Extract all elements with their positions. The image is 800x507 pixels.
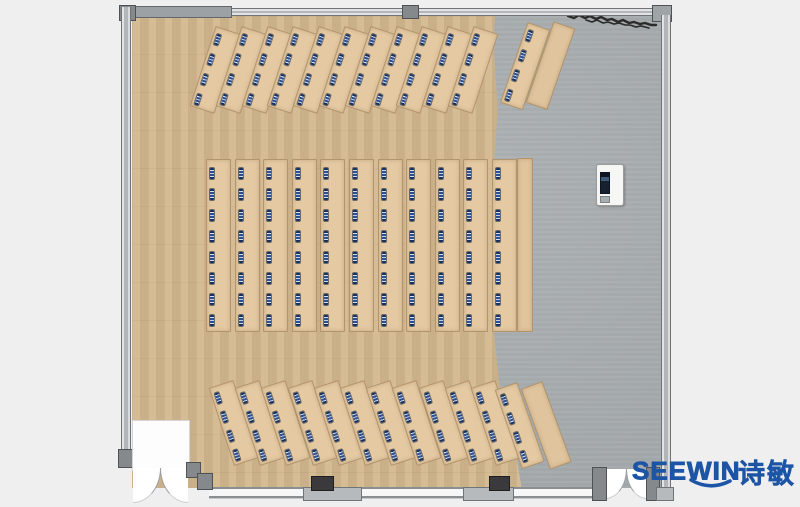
window-band [360,487,463,499]
seat-marker [233,54,240,66]
seat-marker [210,168,214,179]
seat-marker [291,34,298,46]
seat-marker [439,252,443,263]
seat-marker [410,273,414,284]
seat-marker [332,430,339,442]
desk-strip [435,159,460,332]
seat-marker [246,94,253,106]
seat-marker [394,34,401,46]
seat-marker [239,189,243,200]
seat-marker [267,189,271,200]
seat-marker [296,252,300,263]
seat-marker [437,430,444,442]
seat-marker [299,411,306,423]
door-post [592,467,607,501]
logo-swoosh-icon [688,478,734,492]
seat-marker [407,74,414,86]
seat-marker [267,210,271,221]
seat-marker [483,411,490,423]
seat-marker [239,315,243,326]
seat-marker [338,449,345,461]
seat-marker [410,231,414,242]
seat-marker [505,90,512,102]
seat-marker [267,168,271,179]
seat-marker [227,74,234,86]
seat-marker [336,54,343,66]
seat-marker [298,94,305,106]
seat-marker [364,449,371,461]
seat-marker [252,74,259,86]
seat-marker [410,168,414,179]
seat-marker [512,70,519,82]
column-block [489,476,510,491]
seat-marker [501,394,508,406]
seat-marker [439,273,443,284]
seat-marker [467,315,471,326]
seat-marker [210,210,214,221]
seat-marker [210,273,214,284]
seat-marker [304,74,311,86]
desk-strip [235,159,260,332]
seat-marker [496,189,500,200]
seat-marker [369,34,376,46]
seat-marker [439,231,443,242]
window-band [209,487,303,499]
seat-marker [496,168,500,179]
seat-marker [240,34,247,46]
seat-marker [296,231,300,242]
seat-marker [273,411,280,423]
seat-marker [267,315,271,326]
seat-marker [349,94,356,106]
seat-marker [324,252,328,263]
seat-marker [362,54,369,66]
seat-marker [296,294,300,305]
seat-marker [382,189,386,200]
seat-marker [330,74,337,86]
seat-marker [267,273,271,284]
seat-marker [278,74,285,86]
seat-marker [296,168,300,179]
seat-marker [378,411,385,423]
seat-marker [467,294,471,305]
side-counter [517,158,533,332]
seat-marker [279,430,286,442]
podium-screen-icon [600,172,610,194]
seat-marker [324,210,328,221]
seat-marker [343,34,350,46]
seat-marker [317,34,324,46]
seat-marker [210,231,214,242]
seat-marker [439,315,443,326]
seat-marker [495,449,502,461]
seat-marker [324,189,328,200]
seat-marker [439,189,443,200]
seat-marker [233,449,240,461]
floor-plan-canvas: SEEWIN 诗敏 [0,0,800,507]
seat-marker [201,74,208,86]
seat-marker [221,411,228,423]
seat-marker [382,231,386,242]
seat-marker [375,94,382,106]
seat-marker [520,451,527,463]
seat-marker [239,210,243,221]
seat-marker [194,94,201,106]
seat-marker [296,273,300,284]
seat-marker [443,449,450,461]
seat-marker [239,294,243,305]
seat-marker [267,252,271,263]
podium [596,164,624,206]
seat-marker [496,210,500,221]
seat-marker [410,315,414,326]
seat-marker [324,168,328,179]
column-block [311,476,334,491]
seat-marker [465,54,472,66]
seat-marker [424,392,431,404]
seat-marker [463,430,470,442]
seat-marker [526,30,533,42]
seat-marker [457,411,464,423]
door-swing-arc [605,469,627,499]
wall-top-solid-segment [133,6,232,18]
seat-marker [214,34,221,46]
desk-strip [463,159,488,332]
seat-marker [267,294,271,305]
brand-logo-text-cn: 诗敏 [738,452,796,491]
seat-marker [401,94,408,106]
seat-marker [353,294,357,305]
seat-marker [346,392,353,404]
seat-marker [489,430,496,442]
seat-marker [439,294,443,305]
seat-marker [384,430,391,442]
seat-marker [353,315,357,326]
desk-strip [206,159,231,332]
seat-marker [207,54,214,66]
seat-marker [324,273,328,284]
wall-post [402,5,419,19]
seat-marker [285,54,292,66]
door-swing-arc [133,468,161,503]
seat-marker [324,315,328,326]
seat-marker [220,94,227,106]
seat-marker [210,252,214,263]
seat-marker [398,392,405,404]
seat-marker [247,411,254,423]
seat-marker [259,449,266,461]
seat-marker [239,231,243,242]
seat-marker [324,294,328,305]
seat-marker [326,411,333,423]
seat-marker [382,294,386,305]
brand-logo: SEEWIN 诗敏 [626,449,800,505]
seat-marker [467,168,471,179]
seat-marker [467,210,471,221]
seat-marker [227,430,234,442]
seat-marker [323,94,330,106]
seat-marker [390,449,397,461]
seat-marker [433,74,440,86]
seat-marker [239,252,243,263]
seat-marker [404,411,411,423]
seat-marker [410,430,417,442]
seat-marker [267,231,271,242]
seat-marker [439,210,443,221]
seat-marker [215,392,222,404]
door-swing-arc [160,468,188,503]
seat-marker [259,54,266,66]
seat-marker [496,315,500,326]
podium-foot [600,196,610,203]
seat-marker [353,231,357,242]
seat-marker [507,413,514,425]
seat-marker [296,315,300,326]
wall-right [661,15,671,498]
seat-marker [467,231,471,242]
seat-marker [311,54,318,66]
desk-strip [406,159,431,332]
seat-marker [382,252,386,263]
desk-strip [492,159,517,332]
seat-marker [467,189,471,200]
seat-marker [459,74,466,86]
seat-marker [353,210,357,221]
desk-strip [263,159,288,332]
wall-left [121,7,131,459]
seat-marker [241,392,248,404]
seat-marker [265,34,272,46]
seat-marker [319,392,326,404]
seat-marker [496,294,500,305]
seat-marker [410,210,414,221]
seat-marker [382,168,386,179]
seat-marker [430,411,437,423]
seat-marker [382,210,386,221]
seat-marker [414,54,421,66]
seat-marker [496,252,500,263]
seat-marker [210,315,214,326]
seat-marker [352,411,359,423]
desk-strip [378,159,403,332]
seat-marker [427,94,434,106]
seat-marker [472,34,479,46]
seat-marker [296,210,300,221]
desk-strip [292,159,317,332]
seat-marker [210,294,214,305]
entrance-alcove [132,420,190,471]
seat-marker [353,273,357,284]
seat-marker [267,392,274,404]
seat-marker [446,34,453,46]
seat-marker [239,168,243,179]
seat-marker [496,273,500,284]
desk-strip [349,159,374,332]
seat-marker [452,94,459,106]
seat-marker [358,430,365,442]
seat-marker [272,94,279,106]
seat-marker [410,252,414,263]
seat-marker [382,315,386,326]
seat-marker [469,449,476,461]
seat-marker [440,54,447,66]
seat-marker [417,449,424,461]
seat-marker [410,189,414,200]
desk-strip [320,159,345,332]
seat-marker [477,392,484,404]
seat-marker [324,231,328,242]
seat-marker [293,392,300,404]
seat-marker [420,34,427,46]
seat-marker [353,252,357,263]
seat-marker [353,189,357,200]
seat-marker [306,430,313,442]
seat-marker [381,74,388,86]
seat-marker [450,392,457,404]
seat-marker [519,50,526,62]
seat-marker [467,273,471,284]
seat-marker [410,294,414,305]
seat-marker [439,168,443,179]
seat-marker [296,189,300,200]
seat-marker [210,189,214,200]
seat-marker [356,74,363,86]
seat-marker [353,168,357,179]
seat-marker [239,273,243,284]
seat-marker [312,449,319,461]
seat-marker [382,273,386,284]
seat-marker [496,231,500,242]
window-band [512,487,592,499]
seat-marker [286,449,293,461]
door-post [197,473,213,490]
seat-marker [388,54,395,66]
seat-marker [372,392,379,404]
seat-marker [467,252,471,263]
seat-marker [253,430,260,442]
seat-marker [514,432,521,444]
